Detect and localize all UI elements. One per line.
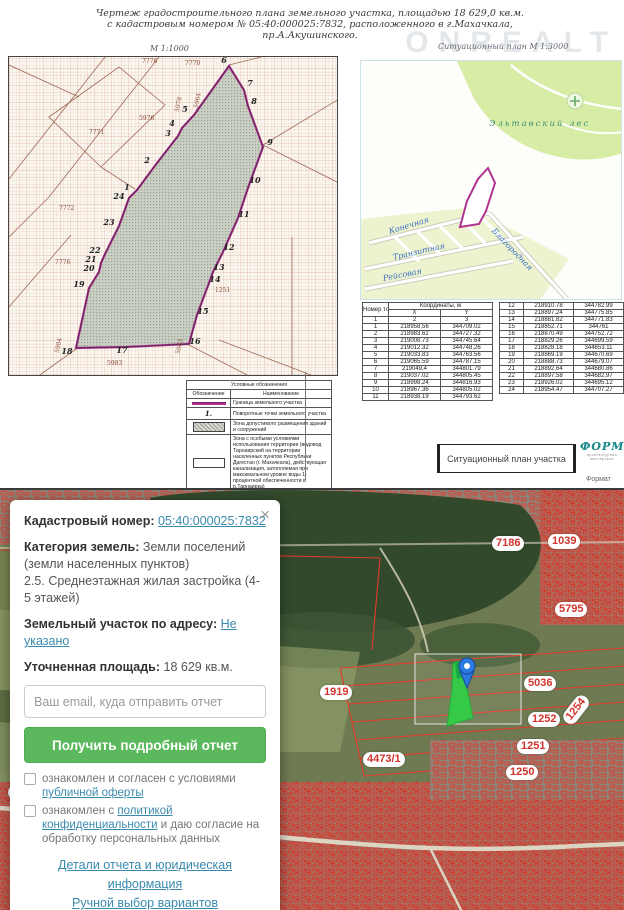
parcel-number-label: 7776 <box>55 259 70 266</box>
coordinate-cell: 13 <box>500 310 524 317</box>
coordinate-row: 23218926.02344695.12 <box>500 380 624 387</box>
vertex-label: 23 <box>103 217 114 227</box>
land-category-detail: 2.5. Среднеэтажная жилая застройка (4-5 … <box>24 573 266 607</box>
coordinate-cell: 5 <box>363 352 389 359</box>
coordinate-cell: 344787.15 <box>441 359 493 366</box>
coordinate-cell: 218897.24 <box>524 310 574 317</box>
coordinate-row: 10218967.36344805.02 <box>363 387 493 394</box>
forest-label: Эльтавский лес <box>489 119 590 129</box>
coordinate-row: 22218897.58344682.97 <box>500 373 624 380</box>
coordinate-cell: 218852.71 <box>524 324 574 331</box>
map-parcel-label: 5795 <box>555 602 587 617</box>
coordinate-cell: 344699.59 <box>574 338 624 345</box>
parcel-number-label: 7772 <box>59 205 74 212</box>
manual-select-link[interactable]: Ручной выбор вариантов <box>72 896 218 910</box>
forma-logo: ФОРМА архитектурная мастерская <box>580 440 624 473</box>
map-parcel-label: 1251 <box>517 739 549 754</box>
card-footer-links: Детали отчета и юридическая информация Р… <box>24 856 266 910</box>
vertex-label: 22 <box>89 245 100 255</box>
forma-logo-subtext: архитектурная мастерская <box>580 453 624 461</box>
land-plot-drawing: 123456789101112131415161718192021222324 … <box>8 56 338 376</box>
coordinate-cell: 218958.56 <box>389 324 441 331</box>
address-label: Земельный участок по адресу: <box>24 617 217 631</box>
coordinate-cell: 218829.26 <box>524 338 574 345</box>
coordinate-cell: 219037.02 <box>389 373 441 380</box>
title-line-1: Чертеж градостроительного плана земельно… <box>60 8 560 19</box>
turn-point-symbol: 1. <box>187 408 231 420</box>
coordinate-row: 6219065.59344787.15 <box>363 359 493 366</box>
coordinate-cell: 7 <box>363 366 389 373</box>
close-icon[interactable]: × <box>260 506 270 523</box>
situational-parcel-outline <box>460 168 495 227</box>
coordinate-cell: 10 <box>363 387 389 394</box>
coordinate-cell: 218897.58 <box>524 373 574 380</box>
land-plot-polygon <box>76 66 263 348</box>
cadastral-map[interactable]: 7186103957955036125212541251125019194473… <box>0 488 624 910</box>
vertex-label: 6 <box>221 56 227 65</box>
public-offer-link[interactable]: публичной оферты <box>42 787 144 799</box>
parcel-info-card: × Кадастровый номер: 05:40:000025:7832 К… <box>10 500 280 910</box>
legend-name: Зона с особыми условиями использования т… <box>231 435 332 492</box>
cadastral-number-row: Кадастровый номер: 05:40:000025:7832 <box>24 513 266 530</box>
vertex-label: 18 <box>61 346 72 356</box>
vertex-label: 20 <box>83 263 94 273</box>
coordinate-cell: 219012.32 <box>389 345 441 352</box>
coordinate-cell: 218892.64 <box>524 366 574 373</box>
col-header-x: X <box>389 310 441 317</box>
coordinates-table-right: 12218910.78344782.9913218897.24344775.85… <box>499 302 624 394</box>
offer-checkbox-label: ознакомлен и согласен с условиями публич… <box>42 772 266 800</box>
coordinate-cell: 16 <box>500 331 524 338</box>
coordinate-cell: 218926.02 <box>524 380 574 387</box>
coordinate-cell: 218888.73 <box>524 359 574 366</box>
col-header-point: Номер точки <box>363 303 389 317</box>
coordinate-cell: 15 <box>500 324 524 331</box>
coordinate-cell: 22 <box>500 373 524 380</box>
vertex-label: 7 <box>247 78 253 88</box>
coordinate-cell: 219008.73 <box>389 338 441 345</box>
coordinate-cell: 344709.02 <box>441 324 493 331</box>
parcel-number-label: 5983 <box>107 360 122 367</box>
coordinate-cell: 218998.24 <box>389 380 441 387</box>
coordinate-cell: 1 <box>363 324 389 331</box>
coordinate-row: 20218888.73344679.07 <box>500 359 624 366</box>
coordinate-cell: 219033.83 <box>389 352 441 359</box>
map-parcel-label: 7186 <box>492 536 524 551</box>
coordinate-cell: 344763.56 <box>441 352 493 359</box>
map-parcel-label: 1252 <box>528 712 560 727</box>
parcel-number-label: 1251 <box>215 287 230 294</box>
offer-checkbox-row: ознакомлен и согласен с условиями публич… <box>24 772 266 800</box>
coordinate-cell: 344782.99 <box>574 303 624 310</box>
coordinate-cell: 344670.69 <box>574 352 624 359</box>
map-parcel-label: 4473/1 <box>363 752 405 767</box>
coordinate-row: 4219012.32344748.26 <box>363 345 493 352</box>
coordinate-cell: 218828.18 <box>524 345 574 352</box>
forest-area <box>457 61 622 160</box>
coordinate-row: 24218954.47344707.27 <box>500 387 624 394</box>
coordinate-cell: 344761 <box>574 324 624 331</box>
title-line-3: пр.А.Акушинского. <box>60 30 560 41</box>
coordinate-cell: 17 <box>500 338 524 345</box>
vertex-label: 19 <box>73 279 84 289</box>
parcel-number-label: 7771 <box>89 129 104 136</box>
vertex-label: 3 <box>165 128 171 138</box>
screenshot-root: ONREALT Чертеж градостроительного плана … <box>0 0 624 910</box>
col-header-y: Y <box>441 310 493 317</box>
coordinate-row: 1218958.56344709.02 <box>363 324 493 331</box>
coordinate-cell: 218938.19 <box>389 394 441 401</box>
parcel-number-label: 5976 <box>139 115 154 122</box>
coordinate-row: 12218910.78344782.99 <box>500 303 624 310</box>
land-category-label: Категория земель: <box>24 540 139 554</box>
coordinate-cell: 3 <box>363 338 389 345</box>
coordinate-row: 14218881.82344771.83 <box>500 317 624 324</box>
coordinate-cell: 12 <box>500 303 524 310</box>
coordinate-row: 21218892.64344680.86 <box>500 366 624 373</box>
coordinate-cell: 8 <box>363 373 389 380</box>
map-parcel-label: 1039 <box>548 534 580 549</box>
coordinates-table-left: Номер точки Координаты, м X Y 1 2 3 1218… <box>362 302 493 401</box>
coordinate-cell: 219049.4 <box>389 366 441 373</box>
coordinate-cell: 344748.26 <box>441 345 493 352</box>
coordinate-row: 15218852.71344761 <box>500 324 624 331</box>
cadastral-number-link[interactable]: 05:40:000025:7832 <box>158 514 266 528</box>
area-label: Уточненная площадь: <box>24 660 160 674</box>
coordinate-cell: 344775.85 <box>574 310 624 317</box>
coordinate-row: 16218870.49344752.72 <box>500 331 624 338</box>
vertex-label: 12 <box>223 242 234 252</box>
coordinate-cell: 218869.19 <box>524 352 574 359</box>
coordinate-cell: 344793.62 <box>441 394 493 401</box>
main-plan-scale: М 1:1000 <box>150 44 189 53</box>
format-label: Формат <box>586 476 611 483</box>
area-row: Уточненная площадь: 18 629 кв.м. <box>24 659 266 676</box>
legend-col-name: Наименование <box>231 390 332 399</box>
coordinate-cell: 19 <box>500 352 524 359</box>
address-row: Земельный участок по адресу: Не указано <box>24 616 266 650</box>
coordinate-cell: 344653.11 <box>574 345 624 352</box>
coordinate-cell: 2 <box>363 331 389 338</box>
coordinate-cell: 20 <box>500 359 524 366</box>
forma-logo-text: ФОРМА <box>580 440 624 453</box>
vertex-label: 5 <box>182 104 188 114</box>
index-row: 1 2 3 <box>363 317 493 324</box>
vertex-label: 4 <box>169 118 175 128</box>
legend-name: Поворотные точки земельного участка <box>231 408 332 420</box>
coordinate-cell: 344727.32 <box>441 331 493 338</box>
coordinate-cell: 344816.93 <box>441 380 493 387</box>
coordinate-cell: 344707.27 <box>574 387 624 394</box>
vertex-label: 13 <box>213 262 224 272</box>
map-parcel-label: 5036 <box>524 676 556 691</box>
coordinate-cell: 218881.82 <box>524 317 574 324</box>
coordinate-cell: 23 <box>500 380 524 387</box>
situational-plan-caption: Ситуационный план участка <box>437 444 576 473</box>
offer-checkbox[interactable] <box>24 773 36 785</box>
privacy-checkbox-row: ознакомлен с политикой конфиденциальност… <box>24 804 266 846</box>
coordinate-cell: 344801.79 <box>441 366 493 373</box>
vertex-label: 21 <box>85 254 96 264</box>
coordinate-row: 2218983.62344727.32 <box>363 331 493 338</box>
page-fold-line <box>305 372 306 480</box>
coordinate-row: 5219033.83344763.56 <box>363 352 493 359</box>
coordinate-cell: 11 <box>363 394 389 401</box>
coordinate-cell: 24 <box>500 387 524 394</box>
coordinate-row: 7219049.4344801.79 <box>363 366 493 373</box>
coordinate-cell: 344805.45 <box>441 373 493 380</box>
coordinate-cell: 344695.12 <box>574 380 624 387</box>
get-report-button[interactable]: Получить подробный отчет <box>24 727 266 763</box>
privacy-checkbox-label: ознакомлен с политикой конфиденциальност… <box>42 804 266 846</box>
land-category-row: Категория земель: Земли поселений (земли… <box>24 539 266 607</box>
vertex-label: 14 <box>209 274 220 284</box>
coordinate-cell: 9 <box>363 380 389 387</box>
cadastral-plan-document: ONREALT Чертеж градостроительного плана … <box>0 0 624 488</box>
legend-title: Условные обозначения <box>187 381 332 390</box>
legend-row: Зона допустимого размещения зданий и соо… <box>187 420 332 435</box>
legend-col-symbol: Обозначение <box>187 390 231 399</box>
col-header-coords: Координаты, м <box>389 303 493 310</box>
parcel-number-label: 7770 <box>185 60 200 67</box>
vertex-label: 15 <box>197 306 208 316</box>
boundary-line-symbol <box>187 399 231 408</box>
hatched-area-symbol <box>187 420 231 435</box>
cadastral-number-label: Кадастровый номер: <box>24 514 155 528</box>
plot-geometry <box>9 57 338 376</box>
privacy-checkbox[interactable] <box>24 805 36 817</box>
map-parcel-label: 1250 <box>506 765 538 780</box>
parcel-number-label: 7776 <box>142 58 157 65</box>
coordinate-row: 8219037.02344805.45 <box>363 373 493 380</box>
coordinate-cell: 344679.07 <box>574 359 624 366</box>
coordinate-row: 11218938.19344793.62 <box>363 394 493 401</box>
coordinate-cell: 219065.59 <box>389 359 441 366</box>
coordinate-cell: 344680.86 <box>574 366 624 373</box>
vertex-label: 1 <box>124 182 130 192</box>
special-zone-symbol <box>187 435 231 492</box>
situational-plan-scale: Ситуационный план М 1:3000 <box>438 42 568 51</box>
vertex-label: 8 <box>251 96 257 106</box>
title-line-2: с кадастровым номером № 05:40:000025:783… <box>60 19 560 30</box>
coordinate-cell: 344752.72 <box>574 331 624 338</box>
email-input[interactable] <box>24 685 266 718</box>
coordinate-cell: 18 <box>500 345 524 352</box>
coordinate-cell: 218954.47 <box>524 387 574 394</box>
map-parcel-label: 1919 <box>320 685 352 700</box>
coordinate-row: 9218998.24344816.93 <box>363 380 493 387</box>
vertex-label: 10 <box>249 175 260 185</box>
coordinate-row: 13218897.24344775.85 <box>500 310 624 317</box>
coordinate-cell: 218870.49 <box>524 331 574 338</box>
vertex-label: 11 <box>238 209 249 219</box>
coordinate-cell: 6 <box>363 359 389 366</box>
coordinate-row: 3219008.73344745.64 <box>363 338 493 345</box>
legend-name: Граница земельного участка <box>231 399 332 408</box>
coordinate-row: 18218828.18344653.11 <box>500 345 624 352</box>
legend-table: Условные обозначения Обозначение Наимено… <box>186 380 332 492</box>
legend-row: 1.Поворотные точки земельного участка <box>187 408 332 420</box>
area-value: 18 629 кв.м. <box>164 660 233 674</box>
legend-row: Граница земельного участка <box>187 399 332 408</box>
coordinate-cell: 21 <box>500 366 524 373</box>
vertex-label: 16 <box>189 336 200 346</box>
coordinate-cell: 14 <box>500 317 524 324</box>
coordinate-cell: 344771.83 <box>574 317 624 324</box>
situational-geometry <box>361 61 622 300</box>
vertex-label: 2 <box>144 155 150 165</box>
coordinate-cell: 4 <box>363 345 389 352</box>
coordinate-cell: 218967.36 <box>389 387 441 394</box>
coordinate-cell: 344805.02 <box>441 387 493 394</box>
document-title: Чертеж градостроительного плана земельно… <box>60 8 560 41</box>
coordinate-cell: 218983.62 <box>389 331 441 338</box>
legend-name: Зона допустимого размещения зданий и соо… <box>231 420 332 435</box>
coordinate-row: 17218829.26344699.59 <box>500 338 624 345</box>
vertex-label: 9 <box>267 137 273 147</box>
coordinate-row: 19218869.19344670.69 <box>500 352 624 359</box>
vertex-label: 24 <box>113 191 124 201</box>
coordinate-cell: 218910.78 <box>524 303 574 310</box>
situational-plan: Эльтавский лес КонечнаяТранзитнаяРейсова… <box>360 60 622 300</box>
coordinate-cell: 344745.64 <box>441 338 493 345</box>
legend-row: Зона с особыми условиями использования т… <box>187 435 332 492</box>
report-details-link[interactable]: Детали отчета и юридическая информация <box>58 858 232 891</box>
vertex-label: 17 <box>116 345 127 355</box>
coordinate-cell: 344682.97 <box>574 373 624 380</box>
